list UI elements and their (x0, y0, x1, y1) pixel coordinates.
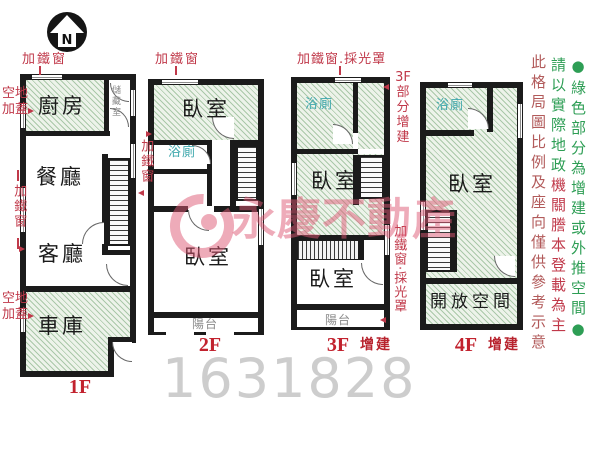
door-arc (106, 264, 128, 286)
room-label-bedroom: 臥室 (182, 99, 230, 120)
floor-label-4f-suffix: 增建 (488, 338, 520, 352)
window-opening (335, 78, 361, 82)
room-label-balcony: 陽台 (325, 314, 351, 326)
room-label-dining: 餐廳 (36, 167, 84, 188)
room-label-garage: 車庫 (38, 316, 86, 337)
annotation-window-2f-top: 加鐵窗 (155, 52, 200, 68)
room-label-kitchen: 廚房 (38, 96, 86, 117)
note-green-area: ●綠色部分為增建或外推空間● (570, 57, 585, 343)
floor-label-1f: 1F (60, 377, 100, 397)
window-opening (32, 75, 62, 79)
arrow-left-icon (383, 84, 389, 90)
room-label-bath: 浴廁 (436, 99, 464, 112)
annotation-vacant-covered-bottom: 空地 加蓋 (2, 291, 28, 324)
door-arc (112, 342, 132, 362)
window-opening (131, 90, 135, 116)
floor-label-4f: 4F (446, 335, 486, 355)
note-registry: 請以實際地政機關謄本登載為主 (550, 57, 565, 337)
window-opening (162, 80, 198, 84)
brand-watermark: 永慶不動產 (232, 198, 457, 242)
room-label-bath: 浴廁 (305, 98, 333, 111)
room-label-bedroom: 臥室 (448, 174, 496, 195)
annotation-window-3f-top: 加鐵窗.採光罩 (297, 52, 386, 68)
door-arc (361, 263, 383, 285)
leader-line (17, 170, 19, 181)
arrow-left-icon (380, 317, 386, 323)
note-registry-green: 請以實際地政 (549, 57, 567, 177)
room-label-bedroom: 臥室 (309, 269, 357, 290)
leader-line (175, 66, 177, 75)
note-registry-red: 機關謄本登載為主 (549, 177, 567, 337)
annotation-window-1f-left: 加鐵窗 (10, 184, 26, 229)
brand-logo-icon (168, 192, 236, 260)
room-label-storage: 儲藏室 (110, 85, 119, 118)
note-scale-disclaimer: 此格局圖比例及座向僅供參考示意 (530, 54, 545, 354)
arrow-right-icon (28, 108, 34, 114)
leader-line (339, 66, 341, 75)
staircase-2f (236, 145, 258, 201)
compass-letter: N (62, 33, 73, 48)
annotation-3f-partial-addition: 3F 部 分 增 建 (394, 70, 412, 145)
staircase-1f (108, 158, 130, 246)
room-label-open-space: 開放空間 (430, 294, 514, 311)
room-label-balcony: 陽台 (192, 318, 218, 330)
window-opening (518, 104, 522, 138)
leader-line (39, 66, 41, 75)
annotation-vacant-covered-top: 空地 加蓋 (2, 86, 28, 119)
listing-number: 1631828 (162, 352, 417, 406)
door-arc (82, 222, 104, 244)
window-opening (131, 144, 135, 178)
window-opening (448, 83, 472, 87)
floorplan-page: N 廚房 儲藏室 餐廳 客廳 (0, 0, 600, 449)
room-label-bath: 浴廁 (168, 146, 196, 159)
room-label-living: 客廳 (38, 244, 86, 265)
arrow-left-icon (138, 190, 144, 196)
room-label-bedroom: 臥室 (311, 171, 359, 192)
window-opening (292, 163, 296, 195)
addition-strip (358, 83, 384, 149)
annotation-window-1f-top: 加鐵窗 (22, 52, 67, 68)
compass-north-icon: N (44, 11, 90, 55)
arrow-right-icon (146, 131, 152, 137)
floorplan-1f: 廚房 儲藏室 餐廳 客廳 車庫 (20, 74, 136, 377)
staircase-3f (359, 155, 384, 199)
arrow-right-icon (19, 246, 25, 252)
annotation-window-mid: 加鐵窗 (137, 139, 153, 184)
garage-area-lower (26, 337, 108, 371)
arrow-right-icon (28, 313, 34, 319)
